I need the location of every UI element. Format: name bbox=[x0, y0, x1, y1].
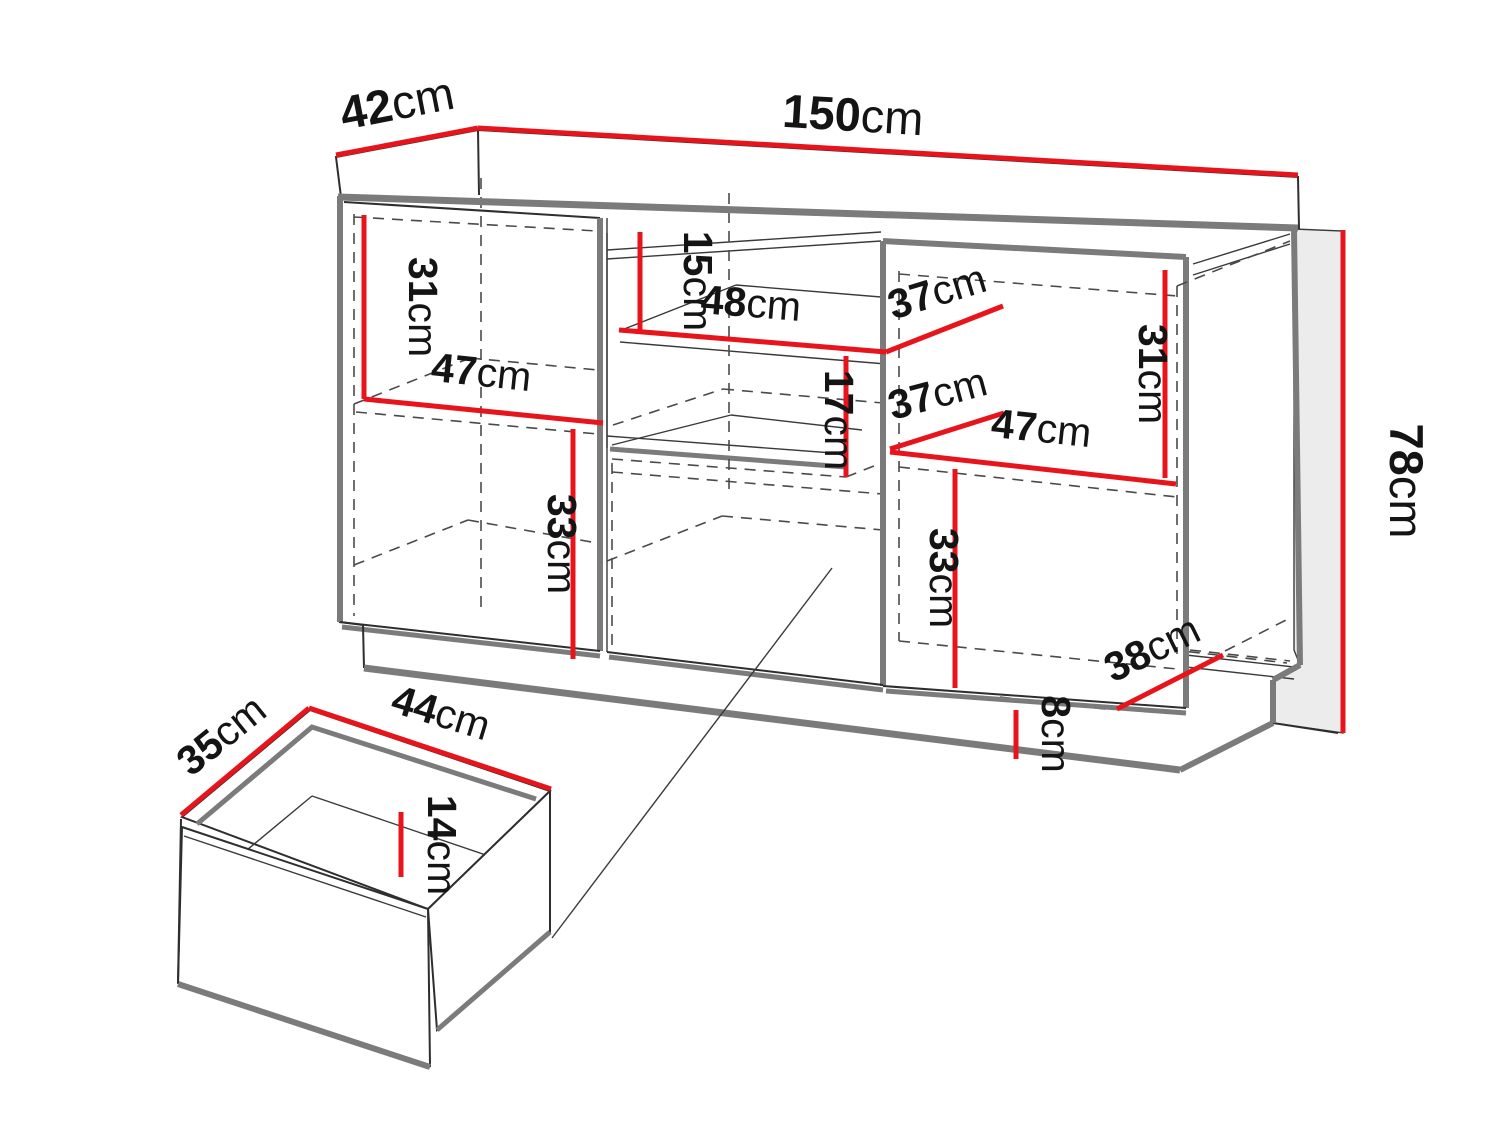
drawer-detail bbox=[178, 708, 551, 1067]
dim-label-right-lower-height: 33cm bbox=[921, 528, 967, 628]
dim-line-48cm bbox=[619, 330, 886, 352]
dimension-diagram-page: 42cm 150cm 78cm 31cm 47cm 33cm 15cm 48cm… bbox=[0, 0, 1500, 1125]
dim-label-top-width: 150cm bbox=[781, 84, 925, 146]
dim-label-top-depth: 42cm bbox=[335, 66, 458, 140]
dim-label-plinth-height: 8cm bbox=[1033, 695, 1079, 772]
cabinet-dimension-diagram: 42cm 150cm 78cm 31cm 47cm 33cm 15cm 48cm… bbox=[0, 0, 1500, 1125]
dim-label-middle-shelf-width: 48cm bbox=[699, 276, 803, 330]
dim-label-height: 78cm bbox=[1380, 424, 1433, 539]
dim-label-left-upper-height: 31cm bbox=[400, 257, 446, 357]
cabinet-right-side-panel bbox=[1273, 229, 1343, 733]
dim-label-right-upper-height: 31cm bbox=[1130, 324, 1176, 424]
dim-label-middle-mid-height: 17cm bbox=[816, 370, 862, 470]
dim-label-drawer-height: 14cm bbox=[419, 795, 465, 895]
dim-label-left-lower-height: 33cm bbox=[539, 494, 585, 594]
